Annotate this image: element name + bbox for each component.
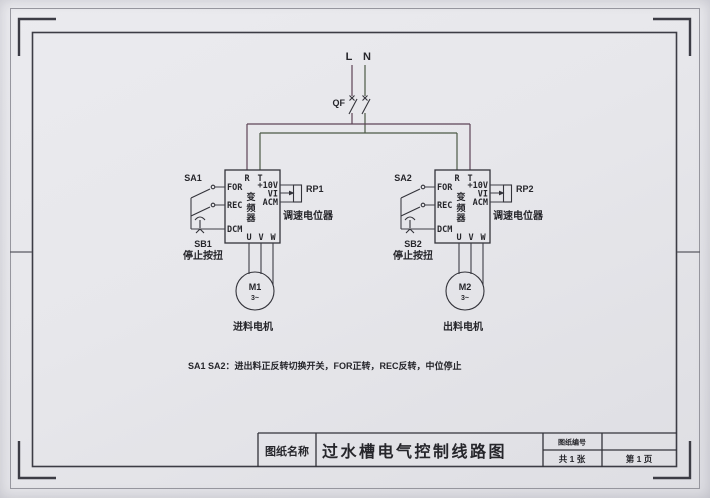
stop-button-sb2-icon [401, 217, 435, 233]
corner-mark-bottom-right [653, 441, 690, 478]
potentiometer-rp2-icon [490, 185, 512, 202]
terminal-dcm: DCM [227, 225, 242, 235]
potentiometer-rp2-label: RP2 [516, 184, 534, 194]
inverter-unit-left: R T FOR REC DCM +10V VI ACM U V W SA1 SB… [183, 170, 334, 333]
inverter-device-label-right: 变频器 [455, 192, 467, 224]
terminal-for: FOR [437, 183, 453, 193]
breaker-qf-icon [349, 96, 370, 115]
selector-switch-sa2-icon [401, 185, 435, 229]
motor-m1-label: M1 [249, 282, 262, 292]
page-number: 第 1 页 [626, 454, 653, 464]
terminal-acm: ACM [263, 198, 278, 208]
terminal-u: U [456, 233, 461, 243]
sheet-count: 共 1 张 [559, 454, 586, 464]
terminal-r: R [244, 174, 250, 184]
motor-m2-label: M2 [459, 282, 472, 292]
potentiometer-rp2-caption: 调速电位器 [493, 209, 544, 222]
terminal-rec: REC [227, 201, 242, 211]
terminal-rec: REC [437, 201, 452, 211]
n-distribution-bus [260, 133, 457, 170]
phase-l-label: L [346, 51, 353, 63]
stop-button-sb1-label: SB1 [194, 239, 212, 249]
inner-border [33, 33, 677, 467]
stop-button-sb1-icon [191, 217, 225, 233]
terminal-acm: ACM [473, 198, 488, 208]
potentiometer-rp1-icon [280, 185, 302, 202]
motor-m1-caption: 进料电机 [233, 320, 273, 333]
drawing-number-label: 图纸编号 [558, 438, 586, 447]
terminal-w: W [480, 233, 486, 243]
selector-sa1-label: SA1 [184, 173, 202, 183]
terminal-u: U [246, 233, 251, 243]
motor-m1-phases: 3~ [251, 295, 259, 302]
outer-border [11, 9, 700, 489]
corner-mark-bottom-left [19, 441, 56, 478]
terminal-w: W [270, 233, 276, 243]
motor-m2-caption: 出料电机 [443, 320, 483, 333]
drawing-sheet: L N QF R T FOR REC DCM +10V VI ACM U V W [0, 0, 710, 498]
stop-button-sb2-caption: 停止按扭 [393, 249, 433, 262]
selector-sa2-label: SA2 [394, 173, 412, 183]
potentiometer-rp1-label: RP1 [306, 184, 324, 194]
terminal-v: V [258, 233, 263, 243]
breaker-qf-label: QF [333, 98, 346, 108]
phase-n-label: N [363, 51, 371, 63]
terminal-v: V [468, 233, 473, 243]
terminal-dcm: DCM [437, 225, 452, 235]
power-supply: L N QF [247, 51, 470, 170]
title-block-name-label: 图纸名称 [265, 444, 309, 458]
corner-mark-top-right [653, 19, 690, 56]
selector-switch-sa1-icon [191, 185, 225, 229]
sheet-frame [10, 9, 700, 489]
inverter-device-label-left: 变频器 [245, 192, 257, 224]
inverter-unit-right: R T FOR REC DCM +10V VI ACM U V W SA2 SB… [393, 170, 544, 333]
stop-button-sb1-caption: 停止按扭 [183, 249, 223, 262]
terminal-r: R [454, 174, 460, 184]
corner-mark-top-left [19, 19, 56, 56]
terminal-for: FOR [227, 183, 243, 193]
potentiometer-rp1-caption: 调速电位器 [283, 209, 334, 222]
drawing-title: 过水槽电气控制线路图 [322, 442, 507, 461]
title-block: 图纸名称 过水槽电气控制线路图 图纸编号 共 1 张 第 1 页 [258, 433, 677, 467]
note-text: SA1 SA2：进出料正反转切换开关，FOR正转，REC反转，中位停止 [188, 360, 462, 371]
l-distribution-bus [247, 124, 470, 170]
motor-m2-phases: 3~ [461, 295, 469, 302]
stop-button-sb2-label: SB2 [404, 239, 422, 249]
